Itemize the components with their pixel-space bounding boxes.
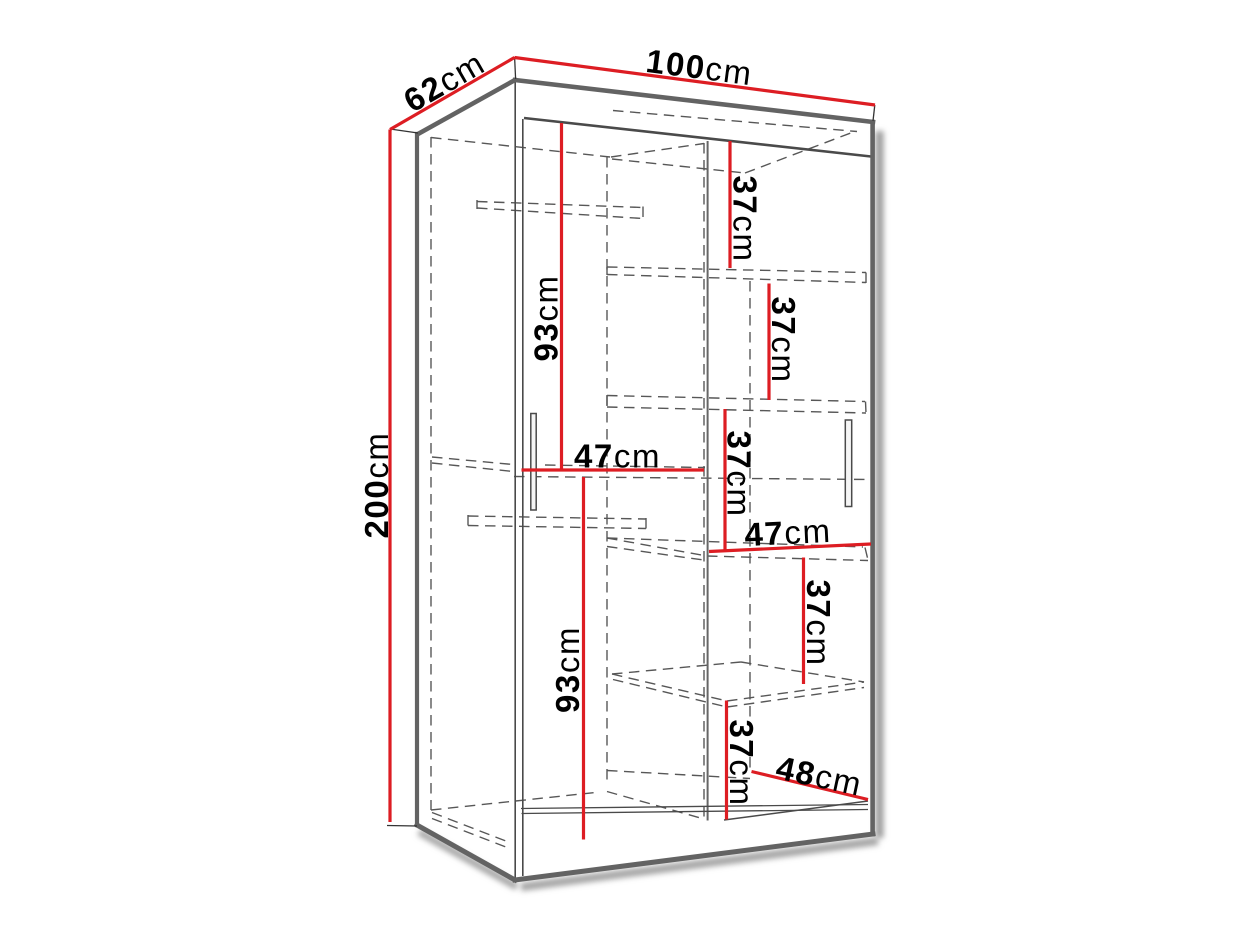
svg-text:93cm: 93cm xyxy=(528,274,565,361)
svg-text:37cm: 37cm xyxy=(765,296,802,383)
svg-text:93cm: 93cm xyxy=(549,626,586,713)
svg-text:47cm: 47cm xyxy=(744,512,833,553)
svg-text:37cm: 37cm xyxy=(727,175,764,262)
svg-text:200cm: 200cm xyxy=(358,431,395,538)
svg-text:47cm: 47cm xyxy=(574,438,661,475)
svg-text:37cm: 37cm xyxy=(800,579,837,666)
svg-text:37cm: 37cm xyxy=(723,719,760,806)
svg-text:37cm: 37cm xyxy=(721,430,758,517)
